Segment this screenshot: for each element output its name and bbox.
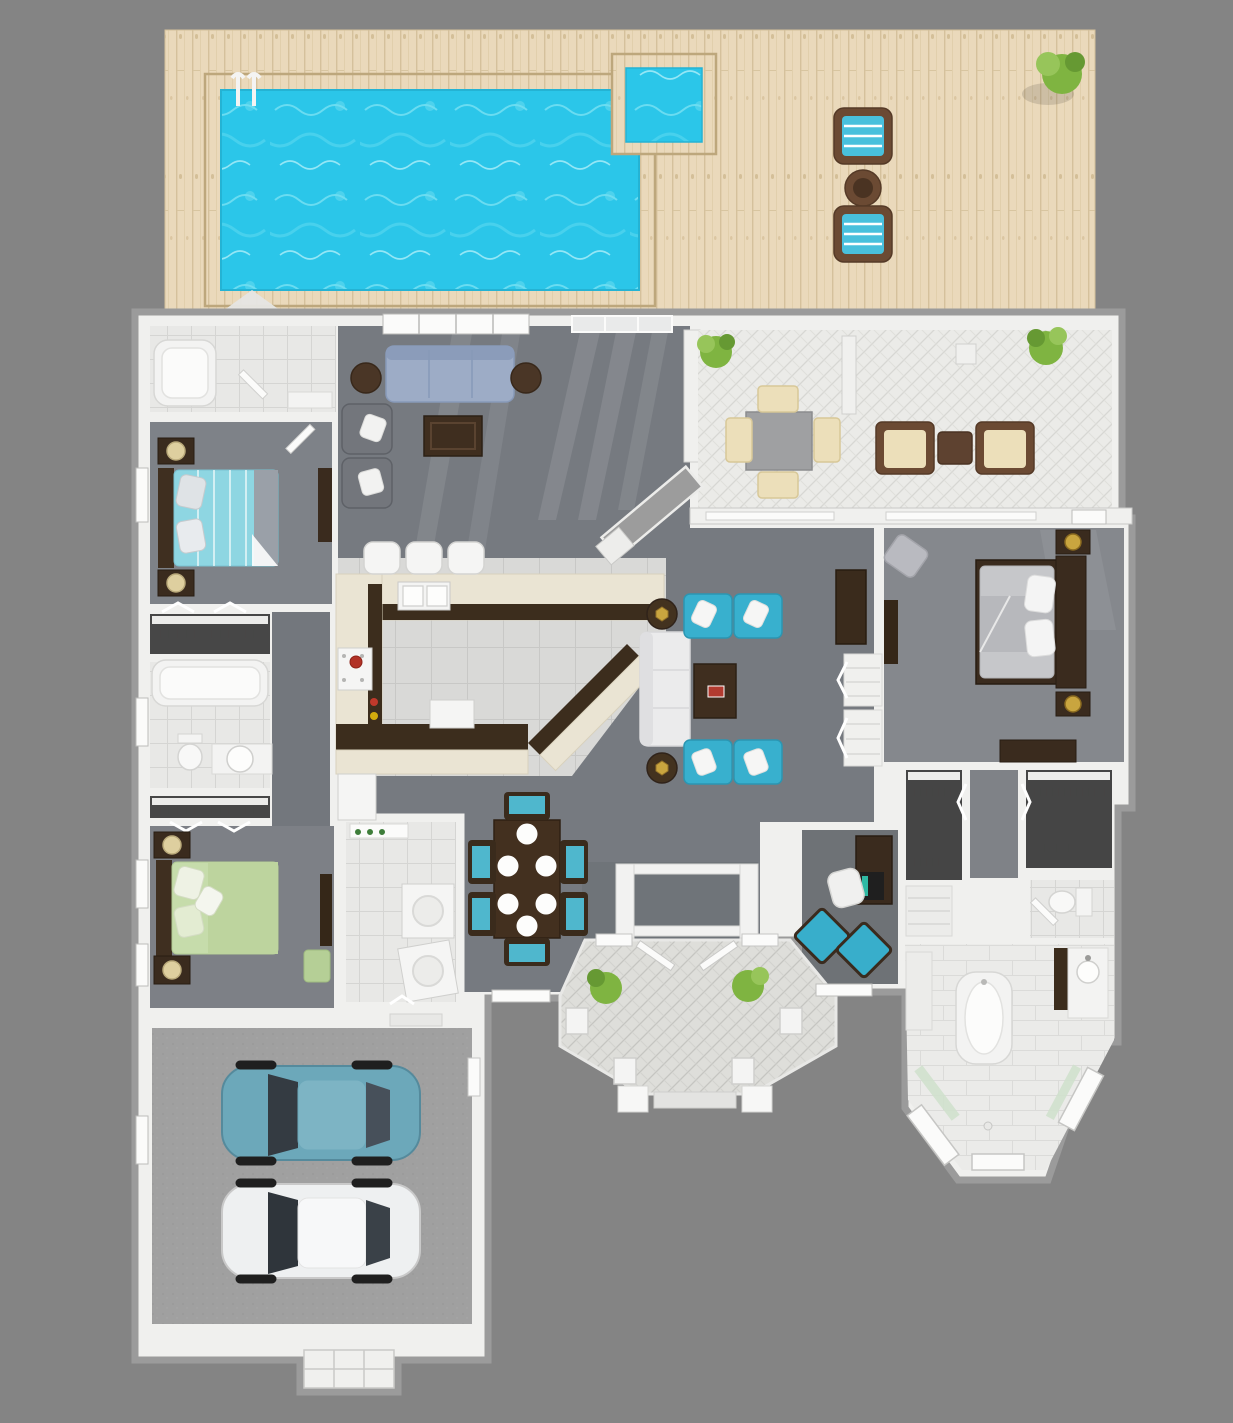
porch-column-nw <box>566 1008 588 1034</box>
master-vanity-faucet <box>1085 955 1091 961</box>
closet-top-rod <box>152 616 268 624</box>
deck-plant-frond1 <box>1036 52 1060 76</box>
lanai-plant-w2 <box>697 335 715 353</box>
bedroom2-headboard <box>158 468 174 568</box>
dining-chair-w2-cushion <box>472 898 490 930</box>
bath3-toilet-bowl <box>178 744 202 770</box>
bedroom3-media <box>320 874 332 946</box>
porch-base-e <box>742 1086 772 1112</box>
master-bath-ledge <box>906 952 932 1030</box>
bedroom3-headboard <box>156 860 172 956</box>
dining-chair-s-cushion <box>509 944 545 962</box>
lanai-chair-n <box>758 386 798 412</box>
deck-plant-frond2 <box>1065 52 1085 72</box>
bath3-toilet-tank <box>178 734 202 743</box>
car-teal-roof <box>298 1080 366 1150</box>
kitchen-spice-red <box>370 698 378 706</box>
master-lamp-s <box>1065 696 1081 712</box>
bedroom3-lamp-s <box>163 961 181 979</box>
bar-stool-1 <box>364 542 400 574</box>
foyer-column-e <box>740 864 758 938</box>
shower-head <box>984 1122 992 1130</box>
car-white-roof <box>298 1198 366 1268</box>
spa-water <box>626 68 702 142</box>
kitchen-pot <box>350 656 362 668</box>
kitchen-bar-cabinets <box>348 604 656 620</box>
great-sofa-back <box>640 632 653 746</box>
lanai-chair-e <box>814 418 840 462</box>
garage-entry-step <box>390 1014 442 1026</box>
lanai-lounge-e-cushion <box>984 430 1026 468</box>
bath2-vanity <box>288 392 332 408</box>
lanai-plant-w3 <box>719 334 735 350</box>
master-pillow-2 <box>1024 619 1056 658</box>
lanai-chair-w <box>726 418 752 462</box>
lanai-west-wall <box>684 330 700 462</box>
porch-base-w <box>618 1086 648 1112</box>
garage-side-door <box>468 1058 480 1096</box>
dining-chair-e1-cushion <box>566 846 584 878</box>
foyer-beam-n <box>618 864 756 874</box>
bath3-tub-basin <box>160 667 260 699</box>
car-white-windshield <box>268 1192 298 1274</box>
bedroom2-window <box>136 468 148 522</box>
bedroom2-dresser <box>318 468 332 542</box>
pool-water <box>221 90 639 290</box>
kitchen-fridge <box>338 774 376 820</box>
toilet-bowl <box>1049 891 1075 913</box>
master-vanity-sink <box>1077 961 1099 983</box>
front-sidelight-e <box>742 934 778 946</box>
porch-plant-e2 <box>751 967 769 985</box>
dining-chair-n-cushion <box>509 796 545 814</box>
master-vanity-cabinet <box>1054 948 1068 1010</box>
den-window <box>816 984 872 996</box>
bath3-mirror <box>227 746 253 772</box>
lanai-lounge-w-cushion <box>884 430 926 468</box>
bath2-tub-basin <box>162 348 208 398</box>
lanai-divider-wall <box>842 336 856 414</box>
toilet-tank <box>1076 888 1092 916</box>
master-top-window <box>1072 510 1106 524</box>
dining-window <box>492 990 550 1002</box>
porch-column-sw <box>614 1058 636 1084</box>
kitchen-dishwasher <box>430 700 474 728</box>
dining-chair-w1-cushion <box>472 846 490 878</box>
car-white-rear-window <box>366 1200 390 1266</box>
master-tv-stand <box>884 600 898 664</box>
bath-bay-window-s <box>972 1154 1024 1170</box>
foyer-column-w <box>616 864 634 938</box>
foyer-beam-s <box>618 926 756 936</box>
family-side-table-left <box>351 363 381 393</box>
master-tub-basin <box>965 982 1003 1054</box>
car-teal-windshield <box>268 1074 298 1156</box>
family-side-table-right <box>511 363 541 393</box>
linen-closet-2 <box>844 710 882 766</box>
master-dresser <box>1000 740 1076 762</box>
bedroom3-lamp-n <box>163 836 181 854</box>
master-closet2-rod <box>1028 772 1110 780</box>
linen-closet-1 <box>844 654 882 706</box>
bedroom3-blanket <box>208 862 278 954</box>
dining-chair-e2-cushion <box>566 898 584 930</box>
lanai-table <box>746 412 812 470</box>
deck-side-table-top <box>853 178 873 198</box>
hall-console-table <box>836 570 866 644</box>
bedroom2-lamp-s <box>167 574 185 592</box>
garage-window <box>136 1116 148 1164</box>
master-lamp-n <box>1065 534 1081 550</box>
lanai-lounge-table <box>938 432 972 464</box>
closet-mid-rod <box>152 798 268 805</box>
floor-plan-rendering <box>0 0 1233 1423</box>
car-teal-rear-window <box>366 1082 390 1148</box>
porch-step <box>654 1092 736 1108</box>
lanai-chair-s <box>758 472 798 498</box>
family-sofa-back <box>386 346 514 360</box>
master-closet1-floor <box>906 770 962 880</box>
master-closet2-floor <box>1026 770 1112 868</box>
kitchen-south-counter <box>336 750 528 774</box>
lanai-plant-e2 <box>1027 329 1045 347</box>
porch-column-ne <box>780 1008 802 1034</box>
bedroom3-bench <box>304 950 330 982</box>
porch-column-se <box>732 1058 754 1084</box>
master-corridor-floor <box>970 770 1018 878</box>
washer-door <box>413 896 443 926</box>
kitchen-spice-yellow <box>370 712 378 720</box>
master-headboard <box>1056 556 1086 688</box>
bar-stool-2 <box>406 542 442 574</box>
porch-plant-w2 <box>587 969 605 987</box>
front-sidelight-w <box>596 934 632 946</box>
bedroom3-window-b <box>136 944 148 986</box>
plan-canvas <box>0 0 1233 1423</box>
bar-stool-3 <box>448 542 484 574</box>
great-coffee-book <box>708 686 724 697</box>
lanai-post <box>956 344 976 364</box>
lanai-south-sill2 <box>886 512 1036 520</box>
lanai-plant-e3 <box>1049 327 1067 345</box>
dryer-door <box>413 956 443 986</box>
bedroom3-window-a <box>136 860 148 908</box>
slider-door <box>572 316 672 332</box>
bedroom2-lamp-n <box>167 442 185 460</box>
master-closet1-rod <box>908 772 960 780</box>
master-tub-faucet <box>981 979 987 985</box>
bath3-window <box>136 698 148 746</box>
master-pillow-1 <box>1024 574 1057 614</box>
bedroom2-pillow-2 <box>175 518 206 554</box>
lanai-south-sill1 <box>706 512 834 520</box>
